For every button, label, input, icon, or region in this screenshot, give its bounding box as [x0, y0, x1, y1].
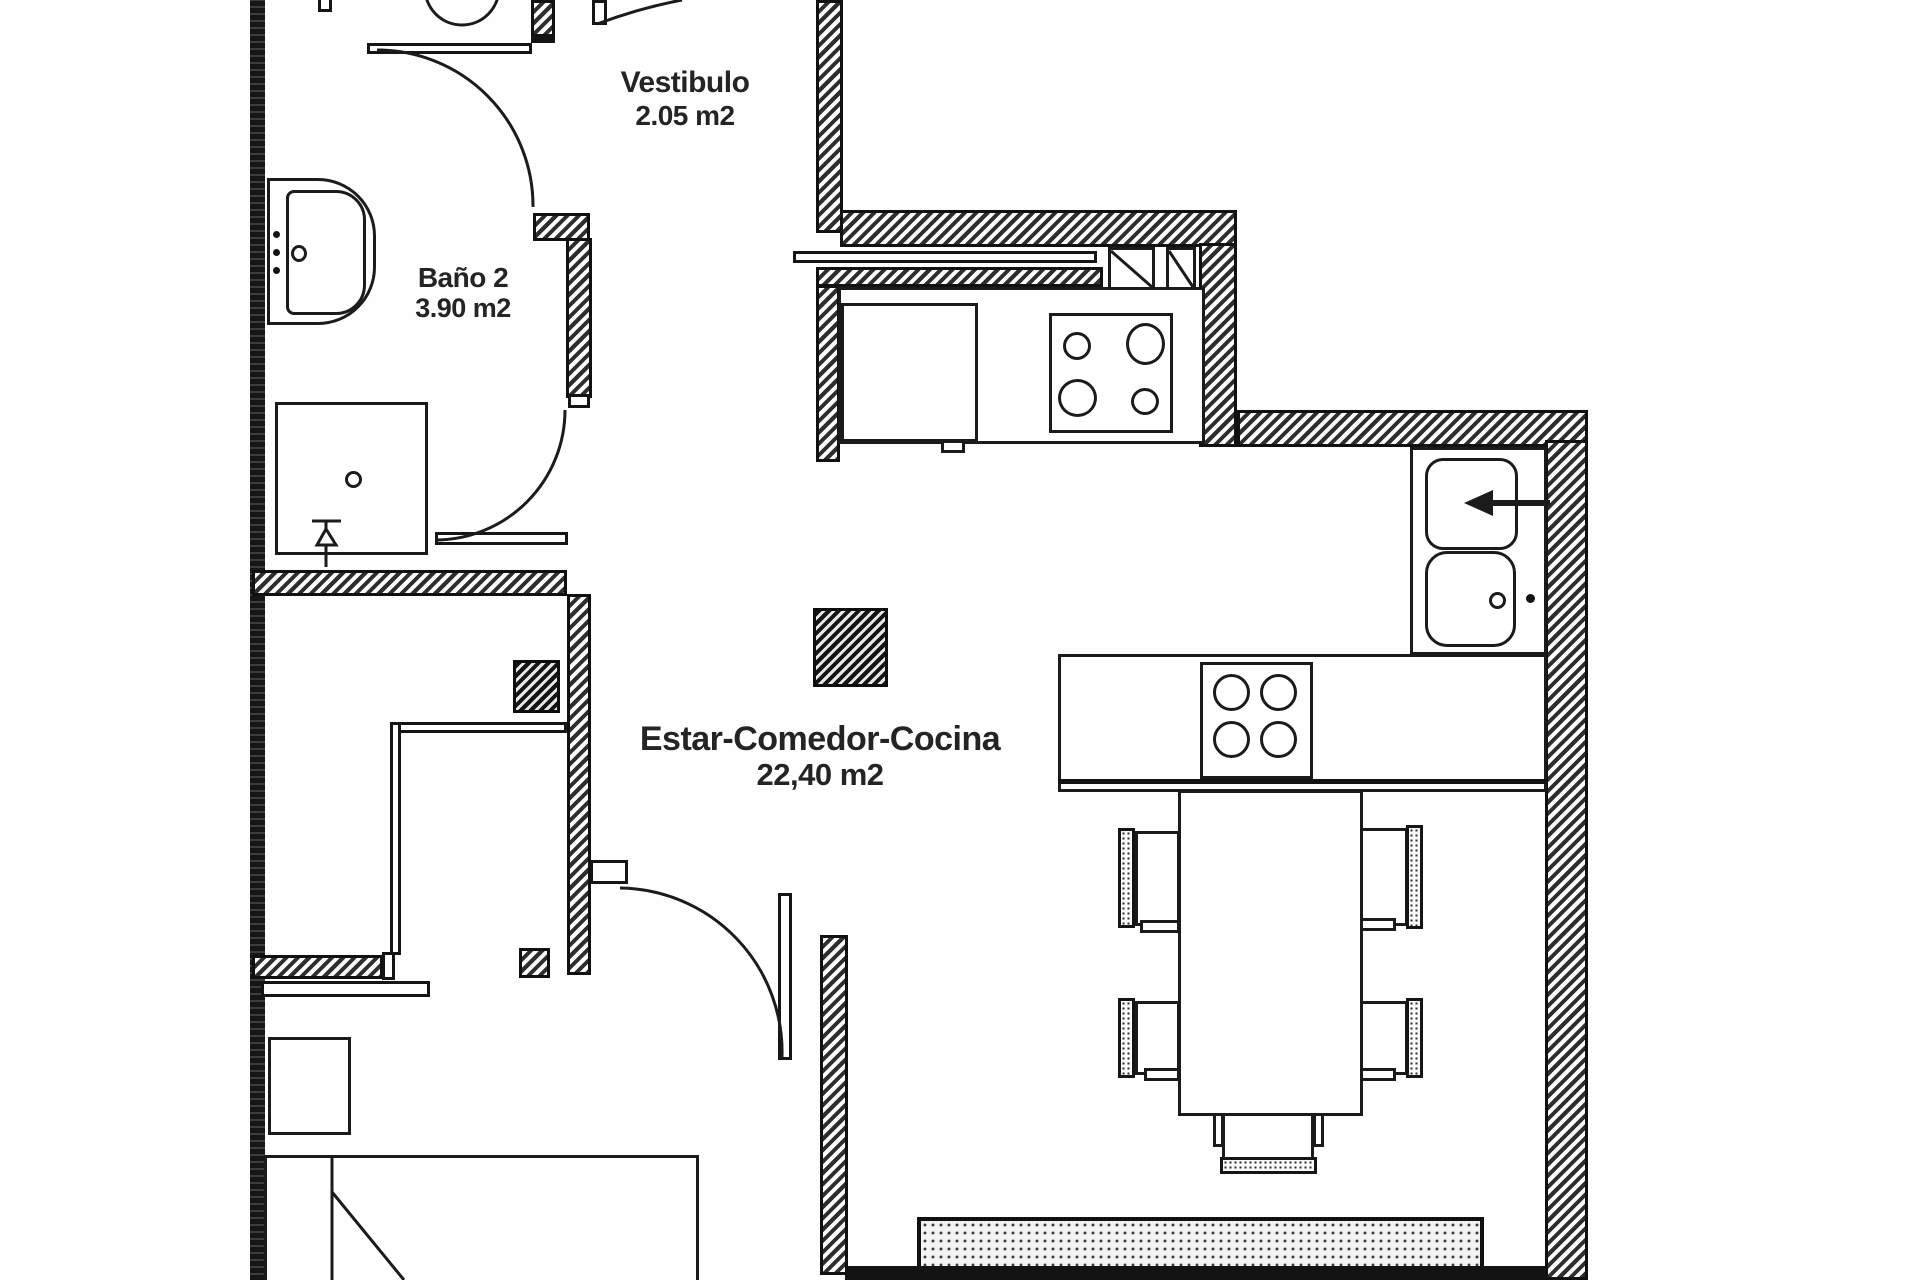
wall-kitchen-left [816, 285, 840, 462]
burner [1260, 721, 1297, 758]
chair-side [1313, 1113, 1324, 1147]
chair-seat [1360, 828, 1408, 926]
fridge [841, 303, 978, 442]
chair-seat [1135, 831, 1180, 926]
floor-plan-canvas: Vestibulo 2.05 m2 Baño 2 3.90 m2 Estar-C… [0, 0, 1920, 1280]
chair-seat [1360, 1001, 1408, 1075]
wall-left-outer [250, 0, 265, 1280]
room-area: 22,40 m2 [610, 758, 1030, 793]
burner [1063, 332, 1091, 360]
burner [1058, 379, 1097, 417]
soap-hole [273, 267, 280, 274]
toilet-bowl [425, 0, 499, 25]
bed [264, 1155, 699, 1280]
entry-door-jamb [592, 0, 607, 25]
wall-bath-corner-v [566, 238, 592, 398]
chair-back [1220, 1157, 1317, 1174]
chair-back [1118, 828, 1135, 928]
room-label-vestibulo: Vestibulo 2.05 m2 [555, 66, 815, 131]
burner [1260, 674, 1297, 711]
fridge-handle [941, 440, 965, 453]
wall-living-left [820, 935, 848, 1275]
wall-entry-pillar [531, 0, 555, 38]
vent-box [1108, 247, 1155, 290]
entry-door-arc [377, 50, 533, 207]
burner [1213, 721, 1250, 758]
outer-door-arc [597, 0, 682, 24]
wall-kitchen-top [840, 210, 1237, 247]
room-name: Estar-Comedor-Cocina [610, 720, 1030, 758]
wall-kitchen-inner [816, 267, 1103, 287]
washbasin-faucet [291, 245, 307, 262]
wall-midroom-bottom [252, 955, 383, 979]
shower-door-leaf [435, 532, 568, 545]
wall-vestibule-kitchen [816, 0, 843, 233]
living-door-jamb [590, 860, 628, 884]
room-label-bano2: Baño 2 3.90 m2 [368, 262, 558, 324]
room-area: 3.90 m2 [368, 293, 558, 323]
wall-bath-corner-h [533, 213, 590, 241]
room-label-estar: Estar-Comedor-Cocina 22,40 m2 [610, 720, 1030, 793]
wall-right-top [1237, 410, 1588, 447]
island-edge [1058, 779, 1547, 784]
room-name: Baño 2 [368, 262, 558, 293]
vent-box [1166, 247, 1196, 290]
room-name: Vestibulo [555, 66, 815, 100]
chair-back [1406, 825, 1423, 929]
wall-midroom-top [252, 570, 567, 596]
kitchen-door-leaf [793, 251, 1097, 263]
entry-partition [367, 43, 532, 54]
toilet-cistern [318, 0, 332, 12]
soap-hole [273, 249, 280, 256]
chair-arm [1140, 920, 1180, 933]
sink-drainer [1425, 458, 1518, 550]
closet-column [513, 660, 560, 713]
shower-drain [345, 471, 362, 488]
sink-faucet [1526, 594, 1535, 603]
living-door-arc [620, 888, 782, 1057]
living-door-leaf [778, 893, 792, 1060]
closet-front-v [390, 722, 401, 955]
chair-back [1118, 998, 1135, 1078]
column [813, 608, 888, 687]
nightstand [268, 1037, 351, 1135]
wall-right-outer [1545, 440, 1588, 1280]
wall-cap [382, 952, 395, 980]
closet-front-h [390, 722, 567, 733]
soap-hole [273, 231, 280, 238]
room-area: 2.05 m2 [555, 100, 815, 131]
burner [1213, 674, 1250, 711]
wall-cap [568, 394, 590, 408]
sink-drain [1489, 592, 1506, 609]
chair-arm [1360, 918, 1396, 931]
burner [1126, 323, 1165, 365]
chair-arm [1360, 1068, 1396, 1081]
bathroom-door-arc [435, 410, 565, 540]
wall-midroom-right [567, 594, 591, 975]
wall-door-pillar [519, 948, 550, 978]
dining-table [1178, 790, 1363, 1116]
midroom-shelf [261, 981, 430, 997]
wall-bottom [845, 1266, 1588, 1280]
chair-seat [1135, 1001, 1180, 1075]
chair-back [1406, 998, 1423, 1078]
burner [1131, 388, 1159, 415]
wall-entry-pillar-cap [531, 34, 555, 43]
chair-arm [1144, 1068, 1180, 1081]
chair-seat [1222, 1113, 1314, 1161]
